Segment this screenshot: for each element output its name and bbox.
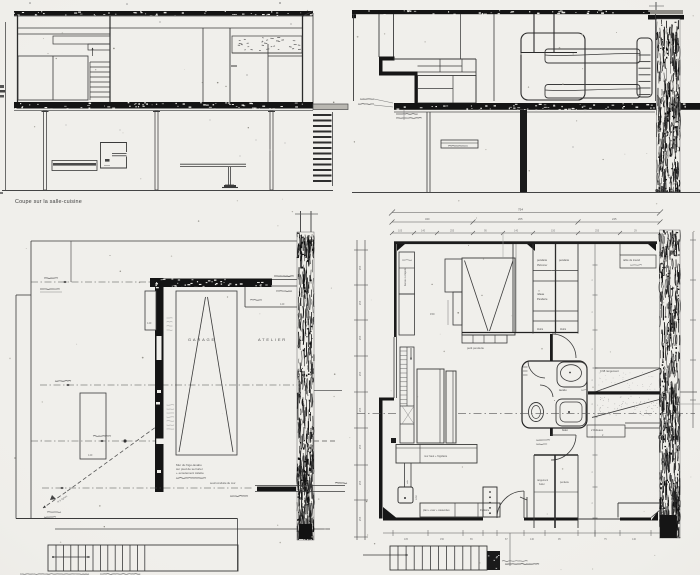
svg-text:140: 140 <box>514 230 519 233</box>
svg-text:Penderie: Penderie <box>537 297 548 301</box>
svg-text:105: 105 <box>398 230 403 233</box>
svg-text:penderie: penderie <box>559 258 570 262</box>
svg-text:205: 205 <box>518 217 523 221</box>
svg-text:255: 255 <box>595 230 600 233</box>
svg-text:bureau a clapets: bureau a clapets <box>404 268 407 286</box>
svg-text:140: 140 <box>421 230 426 233</box>
svg-text:255: 255 <box>358 444 362 449</box>
svg-text:140: 140 <box>632 538 637 541</box>
svg-text:150: 150 <box>440 538 445 541</box>
svg-text:255: 255 <box>358 371 362 376</box>
svg-text:140: 140 <box>147 321 152 325</box>
svg-text:petit penderie: petit penderie <box>467 346 484 350</box>
svg-text:penderie: penderie <box>537 258 548 262</box>
svg-text:255: 255 <box>358 516 362 521</box>
svg-text:Plafonnier: Plafonnier <box>537 264 548 267</box>
svg-text:rangement: rangement <box>537 479 548 482</box>
svg-text:Coupe sur la salle-cuisine: Coupe sur la salle-cuisine <box>15 199 82 205</box>
svg-text:150: 150 <box>430 312 435 316</box>
svg-text:105: 105 <box>404 538 409 541</box>
svg-text:255: 255 <box>358 335 362 340</box>
svg-text:255: 255 <box>358 407 362 412</box>
svg-text:GARAGE: GARAGE <box>188 337 216 342</box>
svg-text:penderie: penderie <box>560 481 570 484</box>
svg-text:150: 150 <box>551 230 556 233</box>
svg-text:+ ecoulement toilette: + ecoulement toilette <box>176 471 204 475</box>
svg-text:140: 140 <box>530 538 535 541</box>
svg-text:builer: builer <box>539 483 545 486</box>
svg-text:tiroirs: tiroirs <box>560 328 567 331</box>
svg-text:255: 255 <box>358 265 362 270</box>
svg-text:evier: evier <box>415 495 418 500</box>
svg-text:tiroirs: tiroirs <box>537 328 544 331</box>
svg-text:340: 340 <box>425 217 430 221</box>
svg-text:140: 140 <box>88 453 93 457</box>
svg-text:lavabo: lavabo <box>559 388 567 392</box>
svg-text:frigidaire: frigidaire <box>480 509 490 512</box>
svg-text:seuil conduite du mur: seuil conduite du mur <box>210 481 236 485</box>
svg-text:255: 255 <box>358 480 362 485</box>
svg-text:bidet: bidet <box>562 428 568 432</box>
svg-text:table de travail: table de travail <box>623 258 640 262</box>
svg-text:255: 255 <box>450 230 455 233</box>
svg-text:245: 245 <box>612 217 617 221</box>
svg-text:plan + evier + casseroles: plan + evier + casseroles <box>423 509 450 512</box>
svg-text:255: 255 <box>358 300 362 305</box>
svg-text:2 Rideaux: 2 Rideaux <box>591 428 604 432</box>
svg-text:140: 140 <box>280 302 285 306</box>
svg-text:ATELIER: ATELIER <box>258 337 287 342</box>
svg-text:754: 754 <box>518 208 523 212</box>
svg-text:0.98 rangement: 0.98 rangement <box>600 369 619 373</box>
svg-text:rideau: rideau <box>537 292 545 296</box>
svg-text:mur haut + frigidaire: mur haut + frigidaire <box>424 454 448 458</box>
